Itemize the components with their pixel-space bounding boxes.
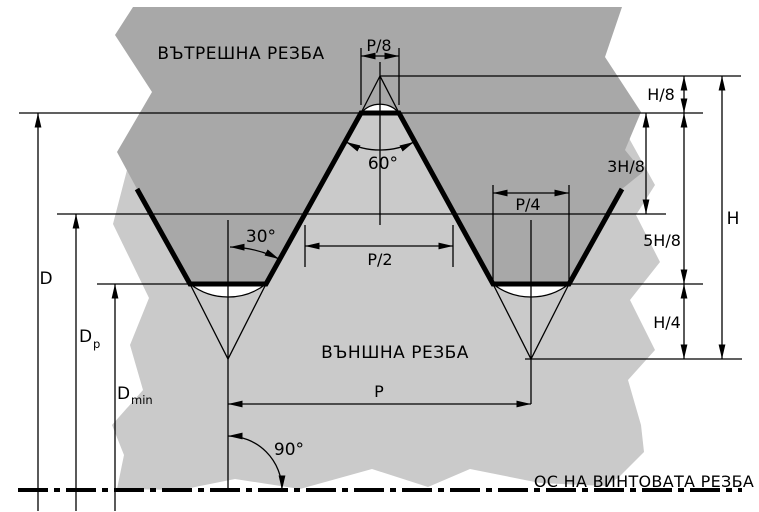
minor-diameter-label: D	[117, 384, 130, 404]
minor-diameter-subscript: min	[131, 393, 153, 407]
angle-60-label: 60°	[368, 154, 398, 174]
internal-thread-label: ВЪТРЕШНА РЕЗБА	[157, 44, 324, 64]
major-diameter-label: D	[39, 269, 52, 289]
p2-label: P/2	[367, 250, 392, 269]
external-thread-label: ВЪНШНА РЕЗБА	[321, 343, 469, 363]
p8-label: P/8	[366, 36, 391, 55]
pitch-diameter-label: D	[79, 327, 92, 347]
thread-axis-label: ОС НА ВИНТОВАТА РЕЗБА	[534, 472, 754, 491]
pitch-diameter-subscript: p	[93, 337, 100, 351]
p-label: P	[374, 382, 384, 401]
h4-label: H/4	[653, 313, 681, 332]
diagram-canvas: ВЪТРЕШНА РЕЗБА ВЪНШНА РЕЗБА ОС НА ВИНТОВ…	[0, 0, 759, 512]
h-label: H	[727, 209, 740, 229]
h8-label: H/8	[647, 85, 675, 104]
p4-label: P/4	[515, 195, 540, 214]
5h8-label: 5H/8	[643, 231, 681, 250]
thread-profile-diagram: ВЪТРЕШНА РЕЗБА ВЪНШНА РЕЗБА ОС НА ВИНТОВ…	[0, 0, 759, 512]
angle-30-label: 30°	[246, 227, 276, 247]
3h8-label: 3H/8	[607, 157, 645, 176]
angle-90-label: 90°	[274, 440, 304, 460]
